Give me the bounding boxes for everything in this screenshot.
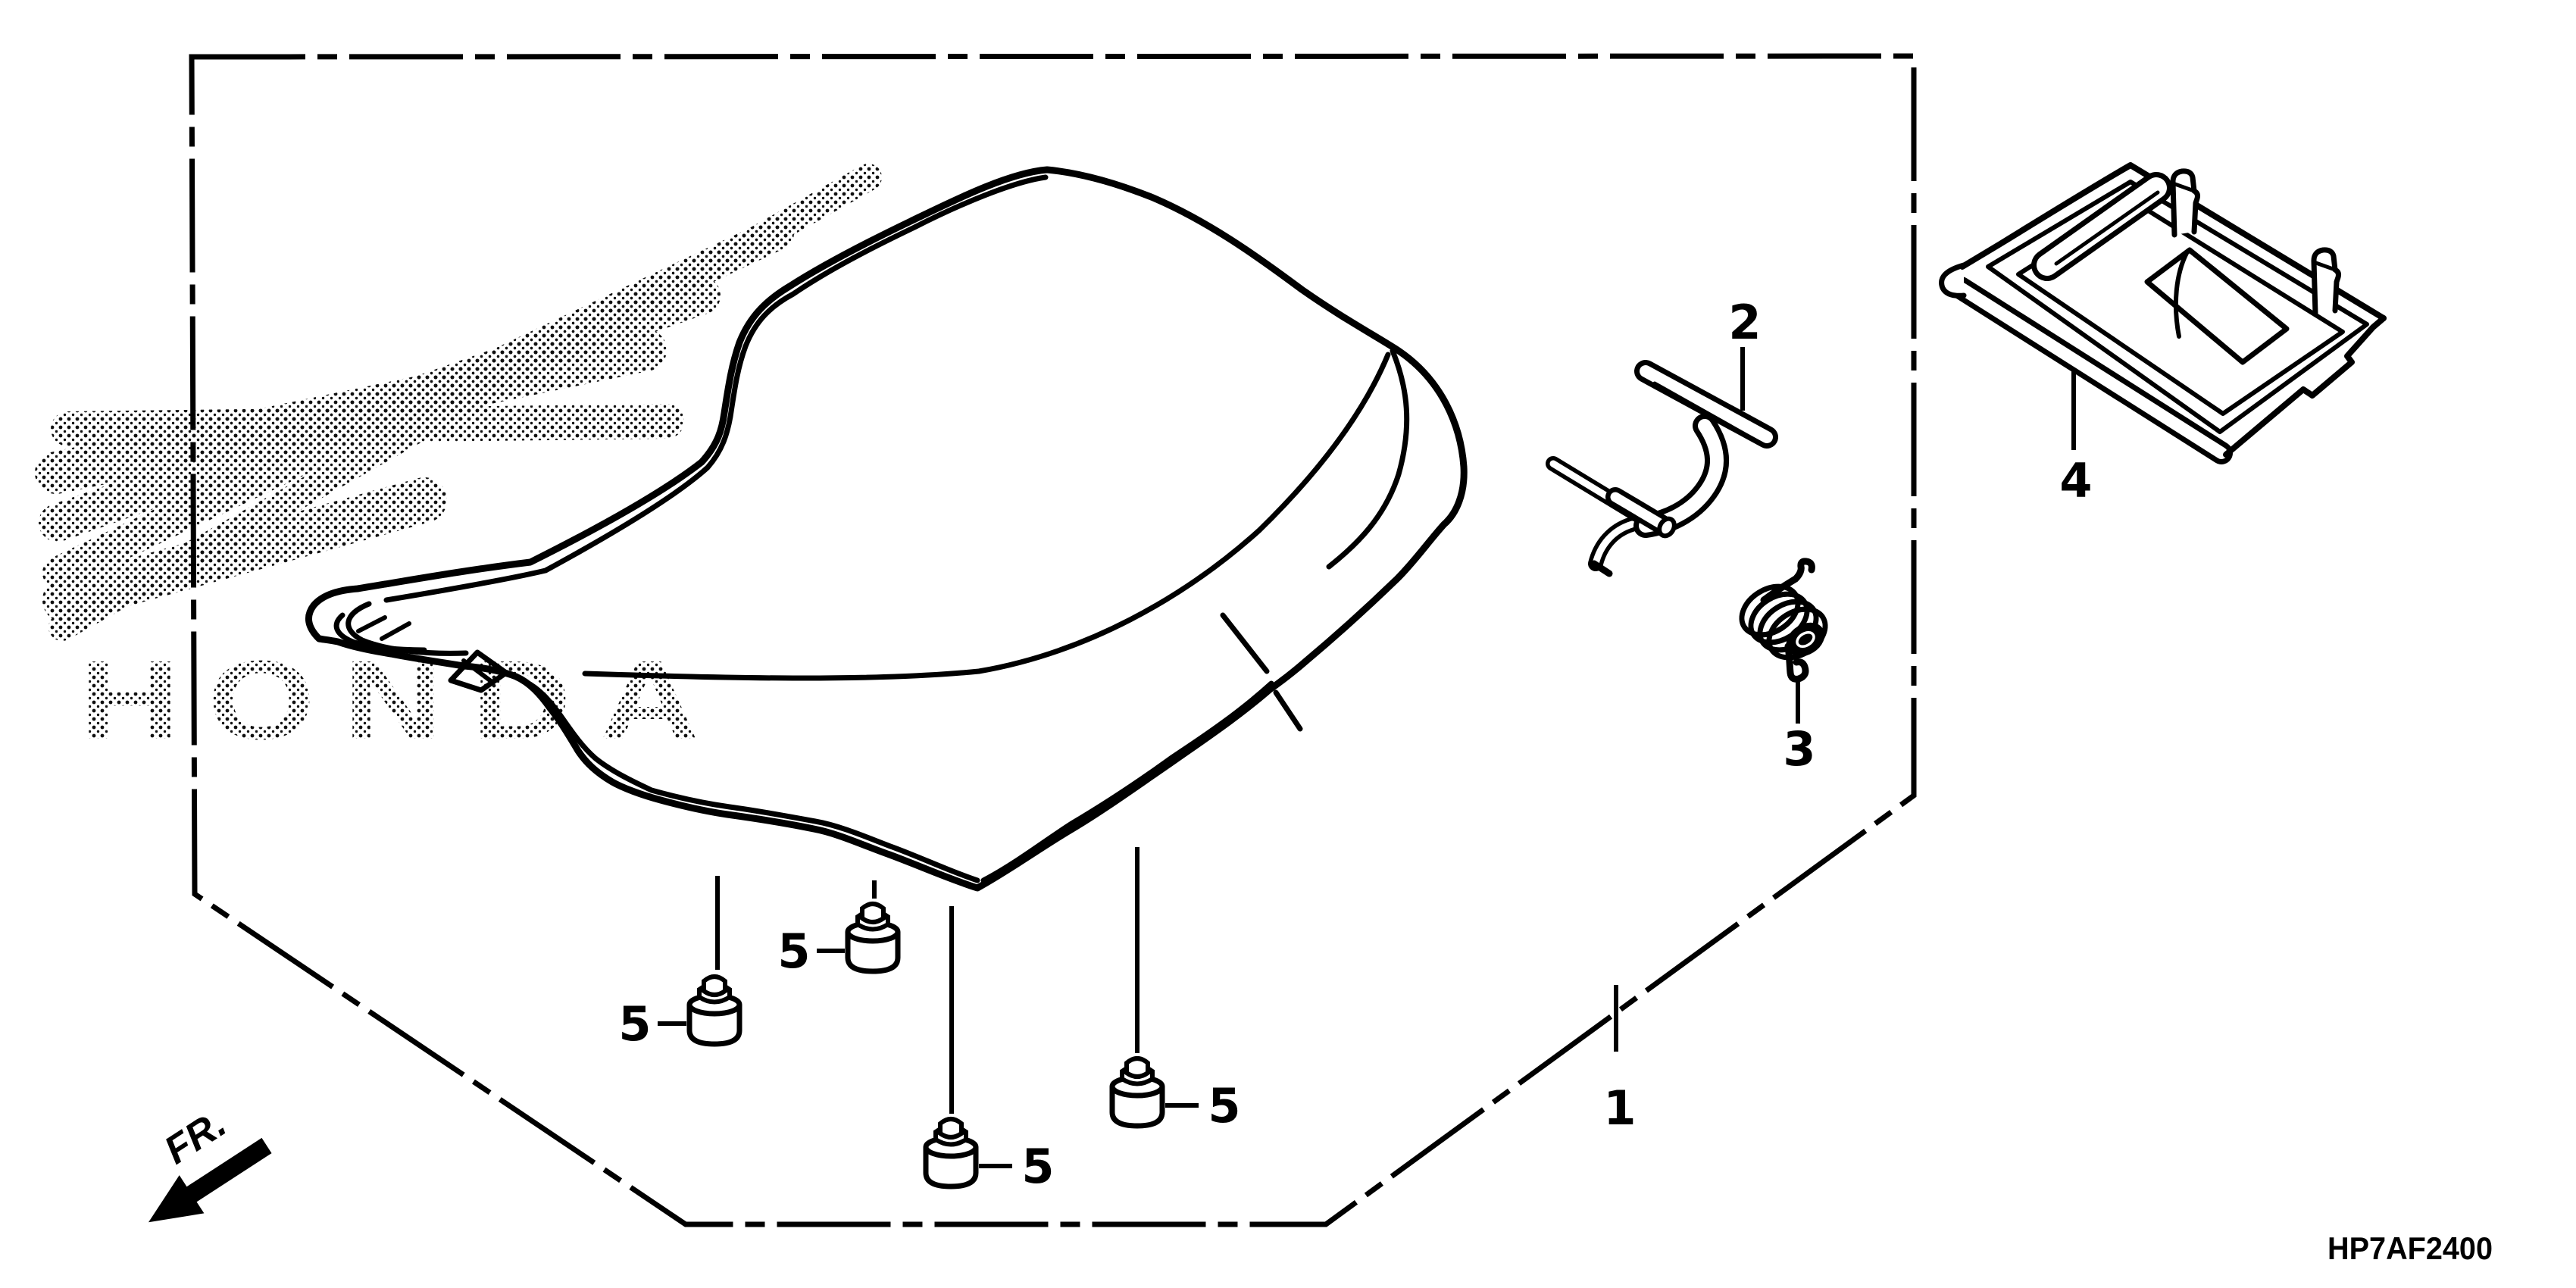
cushion-drawing-2 — [848, 904, 898, 971]
callout-leader-lines — [658, 347, 2074, 1166]
spring-drawing — [1733, 561, 1834, 679]
parts-diagram-page: HONDA — [0, 0, 2576, 1288]
part-label-5c: 5 — [1021, 1139, 1054, 1194]
part-label-1: 1 — [1603, 1080, 1636, 1136]
fr-label: FR. — [157, 1102, 234, 1173]
part-label-5d: 5 — [1208, 1078, 1240, 1133]
part-label-3: 3 — [1783, 721, 1815, 777]
cushion-drawing-4 — [1112, 1058, 1162, 1126]
diagram-code: HP7AF2400 — [2327, 1230, 2493, 1266]
under-plate-drawing — [1942, 165, 2384, 455]
cushion-drawing-1 — [689, 977, 739, 1044]
part-label-5b: 5 — [777, 924, 810, 979]
seat-drawing — [308, 170, 1464, 888]
front-direction: FR. — [136, 1102, 280, 1242]
part-label-4: 4 — [2059, 453, 2092, 508]
lock-bracket-drawing — [1553, 371, 1767, 574]
cushion-drawing-3 — [926, 1119, 976, 1186]
honda-wing-icon — [56, 177, 868, 627]
parts-diagram: HONDA — [0, 0, 2576, 1288]
part-label-5a: 5 — [618, 996, 651, 1052]
part-label-2: 2 — [1728, 295, 1761, 350]
